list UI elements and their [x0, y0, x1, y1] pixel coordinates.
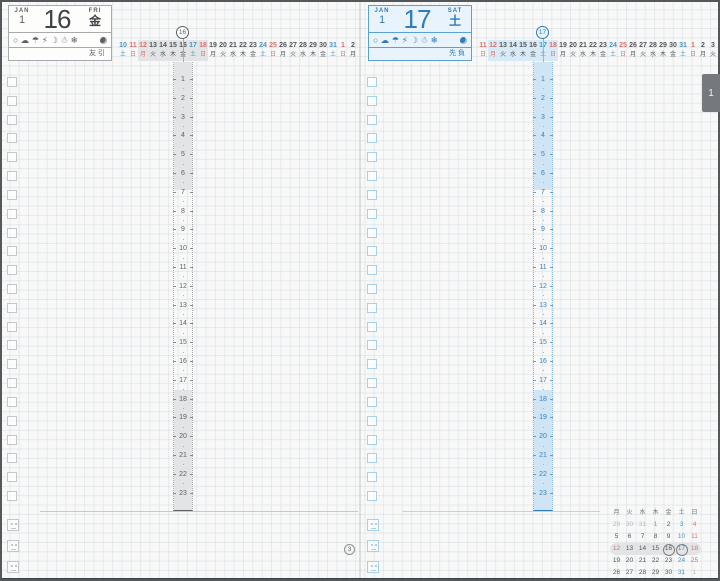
half-hour-tick — [183, 182, 184, 183]
mini-calendar-day: 6 — [623, 531, 636, 543]
half-hour-tick — [183, 446, 184, 447]
footer-stamp-icon — [367, 561, 379, 573]
timeline-hour-label: 9 — [534, 225, 552, 234]
month-tab-january[interactable]: 1 — [702, 74, 720, 112]
month-number: 1 — [369, 14, 395, 27]
mini-calendar-day: 31 — [675, 567, 688, 579]
half-hour-tick — [183, 427, 184, 428]
half-hour-tick — [183, 464, 184, 465]
strip-day: 19月 — [208, 40, 218, 61]
strip-day: 13火 — [498, 40, 508, 61]
weekday-kanji: 金 — [79, 14, 111, 28]
strip-day: 3火 — [708, 40, 718, 61]
strip-day: 31土 — [678, 40, 688, 61]
strip-day: 14水 — [508, 40, 518, 61]
mini-calendar-weekday: 金 — [662, 507, 675, 519]
mini-calendar-day: 1 — [649, 519, 662, 531]
strip-day: 12月 — [488, 40, 498, 61]
strip-day: 15木 — [518, 40, 528, 61]
half-hour-tick — [543, 446, 544, 447]
today-circle-marker: 16 — [176, 26, 189, 39]
strip-day: 1日 — [338, 40, 348, 61]
timeline-hour-label: 11 — [534, 263, 552, 272]
half-hour-tick — [183, 145, 184, 146]
timeline-hour-label: 21 — [174, 451, 192, 460]
month-number: 1 — [9, 14, 35, 27]
snowflake-icon: ❄ — [430, 35, 437, 45]
timeline-hour-label: 8 — [174, 207, 192, 216]
memo-checkbox[interactable] — [367, 77, 377, 87]
memo-checkbox[interactable] — [7, 133, 17, 143]
timeline-hour-label: 3 — [174, 113, 192, 122]
half-hour-tick — [543, 370, 544, 371]
mini-calendar-week-row: 12131415161718 — [610, 543, 701, 555]
timeline-hour-label: 17 — [174, 376, 192, 385]
half-hour-tick — [543, 220, 544, 221]
timeline-hour-label: 22 — [174, 470, 192, 479]
strip-day: 12月 — [138, 40, 148, 61]
timeline-hour-label: 5 — [534, 150, 552, 159]
memo-checkbox[interactable] — [7, 416, 17, 426]
timeline-hour-label: 4 — [534, 131, 552, 140]
strip-day: 16金 — [528, 40, 538, 61]
memo-checkbox[interactable] — [367, 96, 377, 106]
mini-calendar-day: 2 — [662, 519, 675, 531]
strip-day: 20火 — [568, 40, 578, 61]
timeline-hour-label: 14 — [534, 319, 552, 328]
timeline-hour-label: 19 — [534, 413, 552, 422]
mini-calendar-weekday: 月 — [610, 507, 623, 519]
memo-checkbox[interactable] — [7, 115, 17, 125]
mini-calendar-day: 26 — [610, 567, 623, 579]
half-hour-tick — [183, 408, 184, 409]
half-hour-tick — [543, 164, 544, 165]
strip-day: 24土 — [608, 40, 618, 61]
memo-checkbox[interactable] — [7, 453, 17, 463]
memo-checkbox[interactable] — [367, 190, 377, 200]
mini-calendar-day: 10 — [675, 531, 688, 543]
umbrella-icon: ☂ — [32, 35, 40, 45]
half-hour-tick — [183, 164, 184, 165]
snowflake-icon: ❄ — [70, 35, 77, 45]
date-strip: 11日12月13火14水15木16金17土18日19月20火21水22木23金2… — [478, 40, 718, 61]
memo-checkbox[interactable] — [7, 209, 17, 219]
timeline-hour-label: 19 — [174, 413, 192, 422]
timeline-hour-label: 14 — [174, 319, 192, 328]
footer-stamp-icon — [7, 561, 19, 573]
mini-calendar-week-row: 19202122232425 — [610, 555, 701, 567]
day-header-top: JAN 1 16 FRI 金 — [9, 6, 111, 33]
memo-checkbox[interactable] — [367, 303, 377, 313]
memo-checkbox[interactable] — [7, 246, 17, 256]
mini-calendar-weekday: 水 — [636, 507, 649, 519]
memo-checkbox[interactable] — [7, 340, 17, 350]
half-hour-tick — [543, 258, 544, 259]
half-hour-tick — [183, 239, 184, 240]
mini-calendar-day: 16 — [662, 543, 675, 555]
rokuyo-label: 先負 — [369, 48, 471, 60]
timeline-hour-label: 11 — [174, 263, 192, 272]
timeline-hour-label: 5 — [174, 150, 192, 159]
mini-calendar-day: 17 — [675, 543, 688, 555]
mini-calendar-day: 11 — [688, 531, 701, 543]
mini-calendar-day: 7 — [636, 531, 649, 543]
weekday-kanji: 土 — [439, 14, 471, 28]
strip-day: 11日 — [478, 40, 488, 61]
timeline-hour-label: 23 — [174, 489, 192, 498]
strip-day: 29木 — [658, 40, 668, 61]
memo-checkbox[interactable] — [7, 284, 17, 294]
mini-calendar-day: 19 — [610, 555, 623, 567]
sun-icon: ○ — [13, 35, 18, 45]
strip-day: 27火 — [638, 40, 648, 61]
timeline-hour-label: 10 — [534, 244, 552, 253]
strip-day: 27火 — [288, 40, 298, 61]
half-hour-tick — [543, 88, 544, 89]
mini-calendar-day: 28 — [636, 567, 649, 579]
memo-checkbox[interactable] — [7, 152, 17, 162]
umbrella-icon: ☂ — [392, 35, 400, 45]
lightning-icon: ⚡ — [42, 35, 48, 45]
half-hour-tick — [543, 427, 544, 428]
mini-calendar-weekday: 日 — [688, 507, 701, 519]
strip-day: 18日 — [548, 40, 558, 61]
mini-calendar-day: 20 — [623, 555, 636, 567]
week-number-badge: 3 — [344, 544, 355, 555]
timeline-hour-label: 16 — [534, 357, 552, 366]
footer-rule — [40, 511, 358, 512]
memo-checkbox[interactable] — [367, 416, 377, 426]
timeline-band: 1234567891011121314151617181920212223 — [173, 62, 193, 511]
strip-day: 28水 — [648, 40, 658, 61]
weather-icon-row: ○☁☂⚡☽☃❄ — [369, 33, 471, 48]
mini-calendar-day: 1 — [688, 567, 701, 579]
snowman-icon: ☃ — [420, 35, 428, 45]
memo-checkbox[interactable] — [7, 77, 17, 87]
strip-day: 22木 — [238, 40, 248, 61]
timeline-hour-label: 16 — [174, 357, 192, 366]
timeline-hour-label: 13 — [174, 301, 192, 310]
mini-calendar-day: 30 — [662, 567, 675, 579]
rokuyo-label: 友引 — [9, 48, 111, 60]
mini-calendar-weekday: 木 — [649, 507, 662, 519]
timeline-hour-label: 22 — [534, 470, 552, 479]
strip-day: 21水 — [578, 40, 588, 61]
strip-day: 10土 — [118, 40, 128, 61]
cloud-icon: ☁ — [21, 35, 30, 45]
memo-checkbox[interactable] — [7, 378, 17, 388]
timeline-hour-label: 13 — [534, 301, 552, 310]
half-hour-tick — [183, 352, 184, 353]
memo-checkbox[interactable] — [7, 435, 17, 445]
strip-day: 11日 — [128, 40, 138, 61]
timeline-band: 1234567891011121314151617181920212223 — [533, 62, 553, 511]
memo-checkbox[interactable] — [367, 378, 377, 388]
strip-day: 25日 — [268, 40, 278, 61]
mini-calendar-day: 4 — [688, 519, 701, 531]
strip-day: 21水 — [228, 40, 238, 61]
timeline-hour-label: 23 — [534, 489, 552, 498]
timeline-hour-label: 8 — [534, 207, 552, 216]
strip-day: 17土 — [188, 40, 198, 61]
memo-checkbox[interactable] — [367, 435, 377, 445]
sun-icon: ○ — [373, 35, 378, 45]
half-hour-tick — [183, 126, 184, 127]
half-hour-tick — [543, 295, 544, 296]
memo-checkbox[interactable] — [367, 246, 377, 256]
crescent-moon-icon: ☽ — [410, 35, 418, 45]
mini-calendar-week-row: 2930311234 — [610, 519, 701, 531]
timeline-hour-label: 7 — [174, 188, 192, 197]
day-header-box: JAN 1 17 SAT 土 ○☁☂⚡☽☃❄ 先負 — [368, 5, 472, 61]
strip-day: 31土 — [328, 40, 338, 61]
page-jan17: JAN 1 17 SAT 土 ○☁☂⚡☽☃❄ 先負 11日12月13火14水15… — [360, 0, 720, 581]
mini-calendar-header: 月火水木金土日 — [610, 507, 701, 519]
strip-day: 28水 — [298, 40, 308, 61]
half-hour-tick — [543, 483, 544, 484]
timeline-hour-label: 1 — [174, 75, 192, 84]
strip-day: 14水 — [158, 40, 168, 61]
mini-calendar-week-row: 2627282930311 — [610, 567, 701, 579]
half-hour-tick — [183, 88, 184, 89]
date-strip-cells: 11日12月13火14水15木16金17土18日19月20火21水22木23金2… — [478, 40, 718, 61]
lightning-icon: ⚡ — [402, 35, 408, 45]
timeline-hour-label: 21 — [534, 451, 552, 460]
memo-checkbox[interactable] — [7, 96, 17, 106]
footer-stamp-icon — [367, 519, 379, 531]
month-block: JAN 1 — [9, 6, 35, 32]
strip-day: 15木 — [168, 40, 178, 61]
half-hour-tick — [183, 295, 184, 296]
mini-calendar-day: 27 — [623, 567, 636, 579]
memo-checkbox[interactable] — [367, 228, 377, 238]
memo-checkbox[interactable] — [7, 171, 17, 181]
half-hour-tick — [183, 483, 184, 484]
memo-checkbox[interactable] — [367, 359, 377, 369]
half-hour-tick — [543, 182, 544, 183]
day-header-top: JAN 1 17 SAT 土 — [369, 6, 471, 33]
mini-calendar-day: 14 — [636, 543, 649, 555]
mini-calendar-weekday: 火 — [623, 507, 636, 519]
day-number: 16 — [35, 6, 79, 32]
timeline-hour-label: 10 — [174, 244, 192, 253]
mini-calendar-day: 21 — [636, 555, 649, 567]
strip-day: 1日 — [688, 40, 698, 61]
mini-calendar-day: 29 — [610, 519, 623, 531]
footer-stamp-icon — [7, 540, 19, 552]
day-number: 17 — [395, 6, 439, 32]
footer-stamp-icon — [7, 519, 19, 531]
mini-calendar-weekday: 土 — [675, 507, 688, 519]
month-block: JAN 1 — [369, 6, 395, 32]
strip-day: 2月 — [348, 40, 358, 61]
half-hour-tick — [543, 126, 544, 127]
mini-calendar-day: 18 — [688, 543, 701, 555]
today-connector-line — [183, 39, 184, 63]
timeline-hour-label: 12 — [174, 282, 192, 291]
half-hour-tick — [543, 333, 544, 334]
mini-calendar-day: 31 — [636, 519, 649, 531]
half-hour-tick — [183, 220, 184, 221]
memo-checkbox[interactable] — [367, 322, 377, 332]
memo-checkbox[interactable] — [367, 284, 377, 294]
mini-calendar-day: 30 — [623, 519, 636, 531]
mini-calendar-day: 23 — [662, 555, 675, 567]
strip-day: 23金 — [248, 40, 258, 61]
strip-day: 29木 — [308, 40, 318, 61]
half-hour-tick — [183, 258, 184, 259]
memo-checkbox[interactable] — [367, 340, 377, 350]
memo-checkbox[interactable] — [7, 359, 17, 369]
timeline-hour-label: 15 — [534, 338, 552, 347]
mini-calendar-day: 5 — [610, 531, 623, 543]
timeline-hour-label: 6 — [534, 169, 552, 178]
timeline-hour-label: 17 — [534, 376, 552, 385]
half-hour-tick — [543, 464, 544, 465]
memo-checkbox[interactable] — [367, 133, 377, 143]
memo-checkbox[interactable] — [7, 322, 17, 332]
timeline-hour-label: 6 — [174, 169, 192, 178]
memo-checkbox[interactable] — [7, 265, 17, 275]
mini-month-calendar: 月火水木金土日293031123456789101112131415161718… — [610, 507, 701, 579]
memo-checkbox[interactable] — [367, 453, 377, 463]
timeline-hour-label: 2 — [174, 94, 192, 103]
memo-checkbox[interactable] — [7, 190, 17, 200]
timeline-hour-label: 2 — [534, 94, 552, 103]
strip-day: 24土 — [258, 40, 268, 61]
half-hour-tick — [543, 145, 544, 146]
strip-day: 25日 — [618, 40, 628, 61]
snowman-icon: ☃ — [60, 35, 68, 45]
mini-calendar-day: 25 — [688, 555, 701, 567]
memo-checkbox[interactable] — [367, 171, 377, 181]
mini-calendar-day: 24 — [675, 555, 688, 567]
moon-phase-icon — [100, 37, 107, 44]
mini-calendar-day: 13 — [623, 543, 636, 555]
timeline-hour-label: 18 — [174, 395, 192, 404]
timeline-hour-label: 7 — [534, 188, 552, 197]
strip-day: 30金 — [668, 40, 678, 61]
strip-day: 26月 — [628, 40, 638, 61]
mini-calendar-day: 15 — [649, 543, 662, 555]
mini-calendar-day: 8 — [649, 531, 662, 543]
timeline-hour-label: 20 — [174, 432, 192, 441]
timeline-hour-label: 15 — [174, 338, 192, 347]
memo-checkbox[interactable] — [367, 472, 377, 482]
weekday-block: SAT 土 — [439, 6, 471, 32]
planner-spread: JAN 1 16 FRI 金 ○☁☂⚡☽☃❄ 友引 10土11日12月13火14… — [0, 0, 720, 581]
mini-calendar-day: 3 — [675, 519, 688, 531]
mini-calendar-day: 12 — [610, 543, 623, 555]
half-hour-tick — [183, 389, 184, 390]
strip-day: 22木 — [588, 40, 598, 61]
memo-checkbox[interactable] — [7, 472, 17, 482]
timeline-hour-label: 12 — [534, 282, 552, 291]
moon-phase-icon — [460, 37, 467, 44]
cloud-icon: ☁ — [381, 35, 390, 45]
mini-calendar-week-row: 567891011 — [610, 531, 701, 543]
strip-day: 23金 — [598, 40, 608, 61]
half-hour-tick — [183, 201, 184, 202]
memo-checkbox[interactable] — [367, 397, 377, 407]
timeline-hour-label: 4 — [174, 131, 192, 140]
strip-day: 13火 — [148, 40, 158, 61]
half-hour-tick — [543, 408, 544, 409]
strip-day: 26月 — [278, 40, 288, 61]
footer-rule — [402, 511, 600, 512]
memo-checkbox[interactable] — [367, 115, 377, 125]
page-jan16: JAN 1 16 FRI 金 ○☁☂⚡☽☃❄ 友引 10土11日12月13火14… — [0, 0, 360, 581]
date-strip-cells: 10土11日12月13火14水15木16金17土18日19月20火21水22木2… — [118, 40, 358, 61]
half-hour-tick — [543, 352, 544, 353]
half-hour-tick — [183, 370, 184, 371]
crescent-moon-icon: ☽ — [50, 35, 58, 45]
half-hour-tick — [543, 239, 544, 240]
half-hour-tick — [543, 276, 544, 277]
half-hour-tick — [543, 314, 544, 315]
footer-stamp-icon — [367, 540, 379, 552]
strip-day: 30金 — [318, 40, 328, 61]
date-strip: 10土11日12月13火14水15木16金17土18日19月20火21水22木2… — [118, 40, 358, 61]
strip-day: 20火 — [218, 40, 228, 61]
day-header-box: JAN 1 16 FRI 金 ○☁☂⚡☽☃❄ 友引 — [8, 5, 112, 61]
memo-checkbox[interactable] — [7, 491, 17, 501]
timeline-hour-label: 3 — [534, 113, 552, 122]
mini-calendar-day: 22 — [649, 555, 662, 567]
today-circle-marker: 17 — [536, 26, 549, 39]
timeline-hour-label: 9 — [174, 225, 192, 234]
memo-checkbox[interactable] — [367, 209, 377, 219]
half-hour-tick — [183, 107, 184, 108]
timeline-hour-label: 20 — [534, 432, 552, 441]
half-hour-tick — [543, 201, 544, 202]
half-hour-tick — [183, 314, 184, 315]
timeline-hour-label: 18 — [534, 395, 552, 404]
weather-icon-row: ○☁☂⚡☽☃❄ — [9, 33, 111, 48]
mini-calendar-day: 9 — [662, 531, 675, 543]
memo-checkbox[interactable] — [7, 397, 17, 407]
page-spine — [359, 0, 361, 581]
memo-checkbox[interactable] — [367, 265, 377, 275]
mini-calendar-day: 29 — [649, 567, 662, 579]
strip-day: 19月 — [558, 40, 568, 61]
half-hour-tick — [543, 107, 544, 108]
weekday-block: FRI 金 — [79, 6, 111, 32]
strip-day: 18日 — [198, 40, 208, 61]
memo-checkbox[interactable] — [367, 152, 377, 162]
timeline-hour-label: 1 — [534, 75, 552, 84]
memo-checkbox[interactable] — [367, 491, 377, 501]
memo-checkbox[interactable] — [7, 303, 17, 313]
memo-checkbox[interactable] — [7, 228, 17, 238]
half-hour-tick — [543, 389, 544, 390]
half-hour-tick — [183, 333, 184, 334]
today-connector-line — [543, 39, 544, 63]
strip-day: 2月 — [698, 40, 708, 61]
half-hour-tick — [183, 276, 184, 277]
